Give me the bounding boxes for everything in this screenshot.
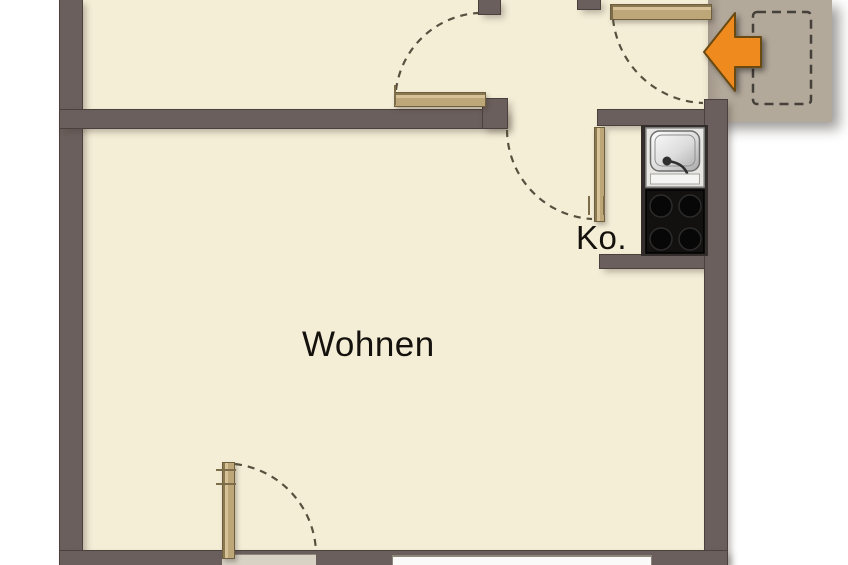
wall-right	[705, 100, 727, 565]
wall-top-right-block	[578, 0, 600, 9]
wall-kitchen-top	[598, 110, 707, 125]
wall-kitchen-bottom	[600, 255, 710, 268]
living-room-window	[392, 555, 652, 565]
wall-living-top-end-block	[483, 99, 507, 128]
floor-plan: Wohnen Ko.	[0, 0, 848, 565]
wall-left	[60, 0, 82, 565]
wall-top-stub	[479, 0, 500, 14]
kitchenette-label: Ko.	[576, 221, 627, 254]
kitchen-door-leaf	[594, 127, 605, 222]
entrance-door-leaf	[610, 4, 712, 20]
balcony-door-leaf	[222, 462, 235, 559]
kitchen-counter	[641, 125, 708, 256]
hallway-door-leaf	[394, 92, 486, 107]
wall-living-top	[60, 110, 507, 128]
living-room-label: Wohnen	[302, 327, 435, 362]
balcony-door-threshold	[222, 554, 316, 565]
